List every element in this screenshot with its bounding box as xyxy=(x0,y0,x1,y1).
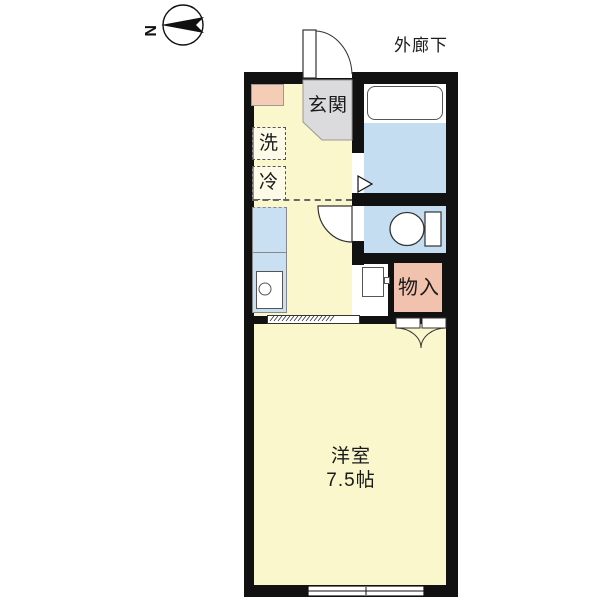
storage-door-right-leaf-icon xyxy=(422,318,446,328)
sink-drain-icon xyxy=(259,283,271,295)
compass-north-letter: N xyxy=(141,25,158,37)
north-arrow-icon: N xyxy=(141,5,204,45)
entrance-door-swing-icon xyxy=(316,31,352,74)
entrance-door-leaf-icon xyxy=(303,30,316,78)
bathroom-door-marker-icon xyxy=(358,176,372,192)
sliding-door-hatch xyxy=(270,316,334,321)
floor-plan: 洗 冷 N xyxy=(0,0,600,600)
corridor-label: 外廊下 xyxy=(381,36,461,56)
room-size-label: 7.5帖 xyxy=(296,470,406,492)
storage-label: 物入 xyxy=(390,276,448,300)
entrance-label: 玄関 xyxy=(304,95,352,117)
room-name-label: 洋室 xyxy=(296,446,406,468)
toilet-door-swing-icon xyxy=(318,206,352,242)
toilet-bowl-icon xyxy=(390,213,424,246)
toilet-tank-icon xyxy=(425,212,441,246)
storage-door-left-swing-icon xyxy=(396,328,421,348)
storage-door-right-swing-icon xyxy=(421,328,446,348)
storage-door-left-leaf-icon xyxy=(396,318,420,328)
plan-symbols-layer: N xyxy=(0,0,600,600)
